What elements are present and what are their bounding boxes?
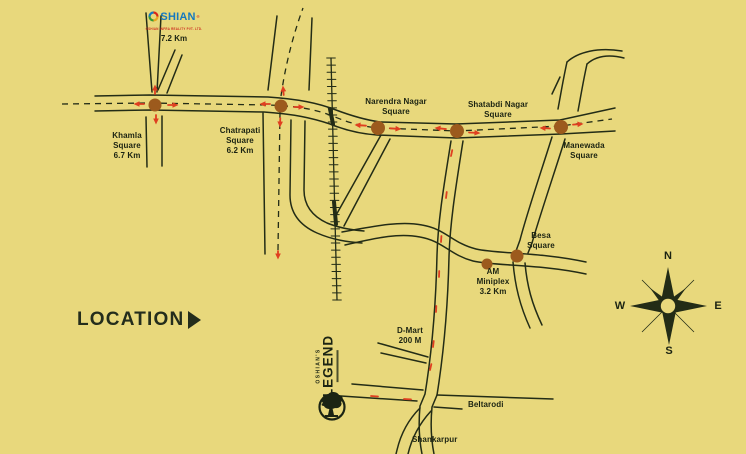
square-dot-chatrapati xyxy=(275,100,288,113)
project-name: LEGEND xyxy=(322,335,335,397)
route-arrow-khamla-down xyxy=(153,115,159,125)
route-arrow-route-1 xyxy=(451,150,452,156)
compass-label-west: W xyxy=(615,300,625,312)
railway-line xyxy=(327,58,342,300)
map-graphic xyxy=(0,0,746,454)
location-map-canvas: KhamlaSquare6.7 KmChatrapatiSquare6.2 Km… xyxy=(0,0,746,454)
map-label-shatabdi-nagar-square: Shatabdi NagarSquare xyxy=(468,100,528,120)
label-line: 6.7 Km xyxy=(112,151,142,161)
label-line: Square xyxy=(527,241,555,251)
oshian-distance: 7.2 Km xyxy=(132,34,216,43)
route-arrow-route-7 xyxy=(430,364,431,370)
tree-icon xyxy=(322,392,343,417)
label-line: Miniplex xyxy=(477,277,510,287)
label-line: Beltarodi xyxy=(468,400,504,410)
square-dot-shatabdi-nagar xyxy=(450,124,464,138)
route-arrow-chatrapati-south-end xyxy=(275,251,281,260)
label-line: Chatrapati xyxy=(220,126,261,136)
map-label-d-mart: D-Mart200 M xyxy=(397,326,423,346)
label-line: Square xyxy=(112,141,142,151)
road-railway-curve xyxy=(290,120,362,243)
route-arrow-narendra-right xyxy=(390,126,401,132)
label-line: Shatabdi Nagar xyxy=(468,100,528,110)
road-main-top-edge xyxy=(95,95,615,124)
location-heading: LOCATION xyxy=(77,309,201,331)
label-line: Manewada xyxy=(563,141,604,151)
label-line: Square xyxy=(220,136,261,146)
square-dot-khamla xyxy=(149,99,162,112)
road-narendra-diagonal xyxy=(335,135,381,217)
route-arrow-chatrapati-down xyxy=(277,118,283,127)
route-arrow-route-6 xyxy=(433,341,434,347)
map-label-manewada-square: ManewadaSquare xyxy=(563,141,604,161)
label-line: 200 M xyxy=(397,336,423,346)
road-besa-south xyxy=(513,262,530,328)
route-arrow-route-2 xyxy=(446,192,447,198)
map-label-besa-square: BesaSquare xyxy=(527,231,555,251)
map-label-shankarpur: Shankarpur xyxy=(412,435,457,445)
location-arrow-icon xyxy=(188,311,201,329)
road-chatrapati-north xyxy=(268,16,277,90)
label-line: Square xyxy=(365,107,426,117)
road-beltarodi xyxy=(437,395,553,399)
route-arrow-chatrapati-left xyxy=(260,101,271,107)
oshian-logo-text: SHIAN xyxy=(160,11,195,23)
label-line: Square xyxy=(563,151,604,161)
label-line: 6.2 Km xyxy=(220,146,261,156)
registered-mark: ® xyxy=(197,14,200,19)
compass-rose xyxy=(630,267,707,345)
location-title: LOCATION xyxy=(77,309,184,331)
oshian-logo: SHIAN ® xyxy=(148,11,199,23)
label-line: AM xyxy=(477,267,510,277)
square-dot-narendra-nagar xyxy=(371,121,385,135)
label-line: 3.2 Km xyxy=(477,287,510,297)
road-manewada-north xyxy=(558,62,567,109)
route-arrow-narendra-left xyxy=(355,123,366,129)
map-label-khamla-square: KhamlaSquare6.7 Km xyxy=(112,131,142,161)
oshian-o-icon xyxy=(148,11,159,22)
compass-label-south: S xyxy=(665,345,672,357)
road-property-access xyxy=(352,384,423,390)
road-main-bottom-edge xyxy=(95,110,615,138)
label-line: Besa xyxy=(527,231,555,241)
map-label-am-miniplex: AMMiniplex3.2 Km xyxy=(477,267,510,297)
label-line: Shankarpur xyxy=(412,435,457,445)
road-khamla-south xyxy=(146,117,147,167)
label-line: D-Mart xyxy=(397,326,423,336)
project-emblem xyxy=(316,391,347,422)
route-arrow-manewada-right xyxy=(573,122,583,128)
road-chatrapati-south xyxy=(263,113,265,254)
square-dot-besa xyxy=(511,250,524,263)
oshian-tagline: OSHIAN INFRA REALITY PVT. LTD. xyxy=(135,27,212,31)
oshian-brand-block: SHIAN ® OSHIAN INFRA REALITY PVT. LTD. 7… xyxy=(132,9,216,43)
route-arrow-chatrapati-right xyxy=(294,104,305,110)
map-label-chatrapati-square: ChatrapatiSquare6.2 Km xyxy=(220,126,261,156)
square-dot-manewada xyxy=(554,120,568,134)
road-khamla-north-fork xyxy=(158,50,175,90)
project-logo: OSHIAN'S LEGEND xyxy=(316,335,339,397)
label-line: Khamla xyxy=(112,131,142,141)
legend-tagline-strip xyxy=(337,350,339,382)
map-label-beltarodi: Beltarodi xyxy=(468,400,504,410)
map-label-narendra-nagar-square: Narendra NagarSquare xyxy=(365,97,426,117)
label-line: Square xyxy=(468,110,528,120)
compass-label-north: N xyxy=(664,250,672,262)
label-line: Narendra Nagar xyxy=(365,97,426,107)
compass-label-east: E xyxy=(714,300,721,312)
route-arrow-khamla-left xyxy=(134,101,145,107)
